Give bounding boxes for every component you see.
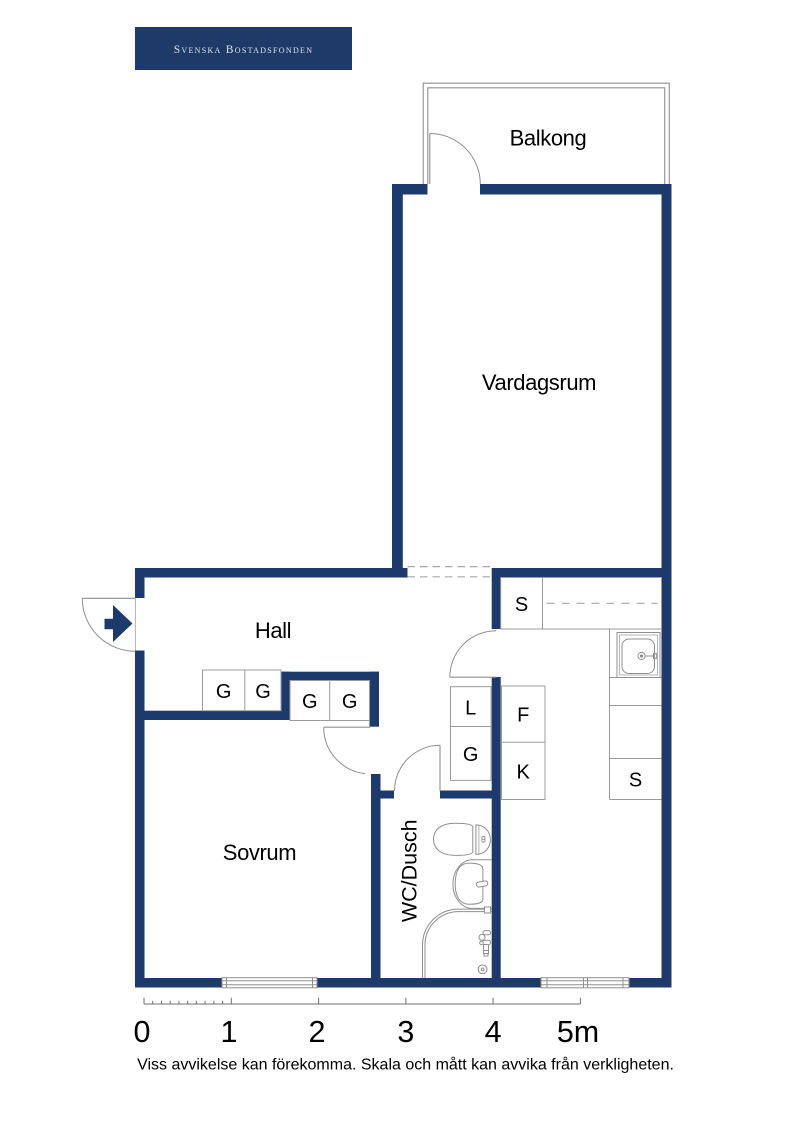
svg-text:4: 4 xyxy=(485,1015,502,1049)
svg-text:S: S xyxy=(515,594,528,616)
svg-text:S: S xyxy=(629,770,642,792)
svg-text:2: 2 xyxy=(309,1015,326,1049)
svg-text:Hall: Hall xyxy=(255,618,291,643)
svg-text:G: G xyxy=(463,744,479,766)
svg-text:G: G xyxy=(216,681,232,703)
svg-text:G: G xyxy=(342,691,358,713)
svg-text:1: 1 xyxy=(221,1015,238,1049)
svg-text:3: 3 xyxy=(397,1015,414,1049)
svg-text:0: 0 xyxy=(134,1015,151,1049)
svg-text:Vardagsrum: Vardagsrum xyxy=(482,370,596,395)
svg-text:Sovrum: Sovrum xyxy=(223,840,296,865)
svg-text:Balkong: Balkong xyxy=(510,125,587,150)
svg-text:K: K xyxy=(517,762,531,784)
svg-text:Viss avvikelse kan förekomma.: Viss avvikelse kan förekomma. Skala och … xyxy=(137,1056,674,1074)
svg-text:WC/Dusch: WC/Dusch xyxy=(397,819,421,922)
svg-text:5m: 5m xyxy=(557,1015,599,1049)
svg-text:G: G xyxy=(302,691,318,713)
svg-text:Svenska Bostadsfonden: Svenska Bostadsfonden xyxy=(174,44,314,56)
svg-text:F: F xyxy=(517,705,529,727)
svg-text:G: G xyxy=(255,681,271,703)
svg-text:L: L xyxy=(465,698,476,720)
